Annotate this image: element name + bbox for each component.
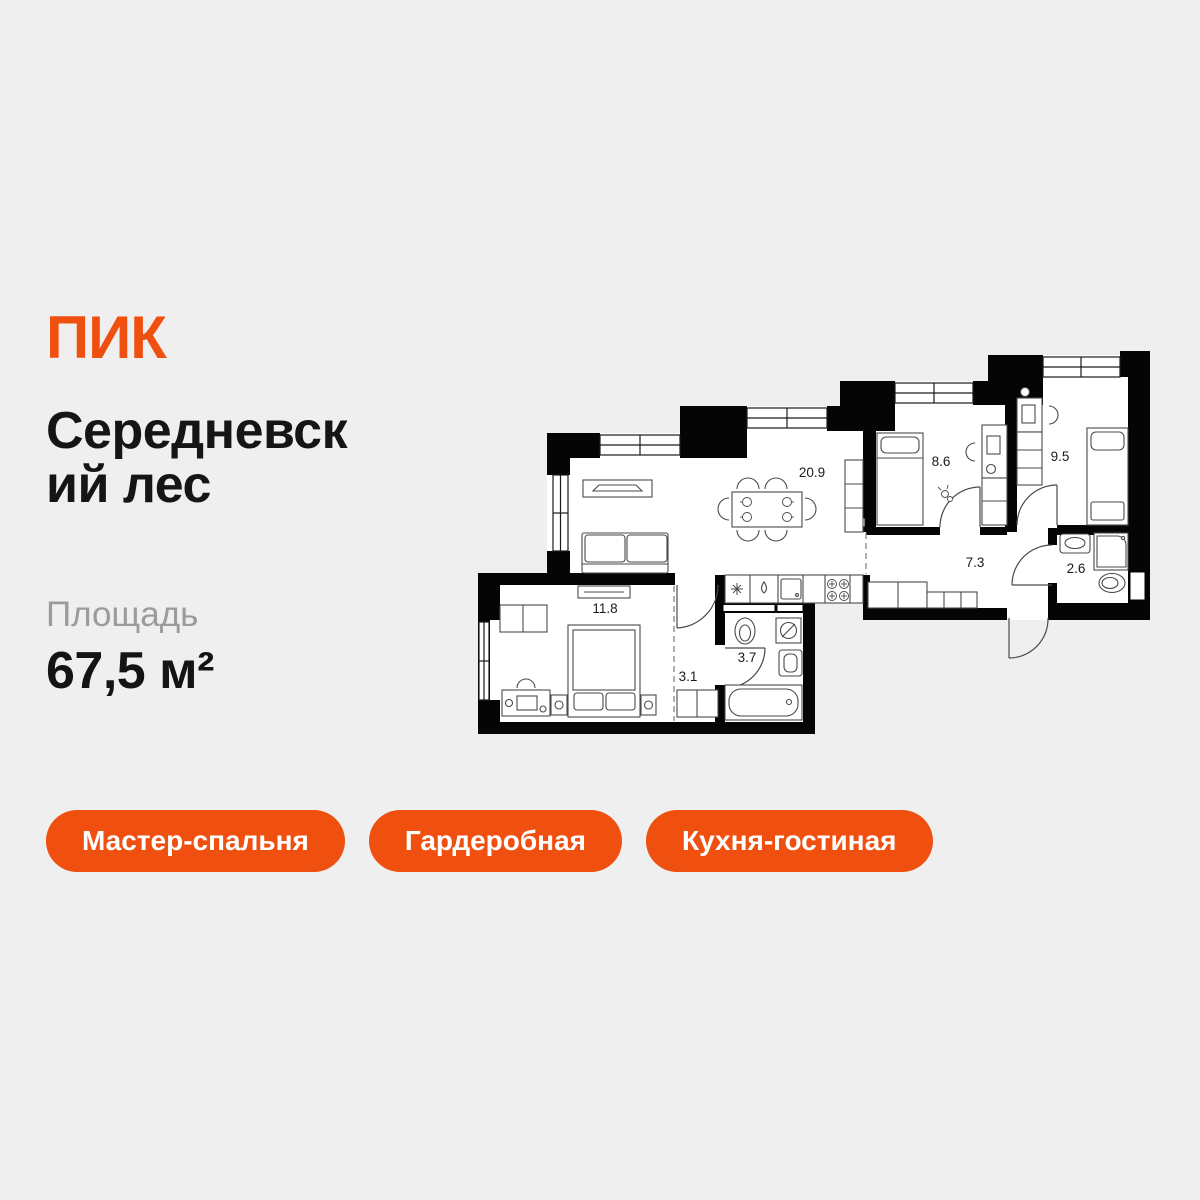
room-label-hallway: 7.3: [966, 555, 985, 570]
shelf-living: [845, 460, 863, 532]
badge-master-bedroom: Мастер-спальня: [46, 810, 345, 872]
area-value: 67,5 м²: [46, 645, 214, 697]
master-dresser: [578, 586, 630, 598]
badge-wardrobe-room: Гардеробная: [369, 810, 622, 872]
sink-bathroom37: [779, 650, 802, 676]
window-living-top: [600, 435, 680, 455]
master-wardrobe: [500, 605, 547, 632]
window-master-left: [479, 622, 489, 700]
badge-kitchen-living: Кухня-гостиная: [646, 810, 933, 872]
project-title-line1: Середневск: [46, 404, 347, 458]
window-living-left: [553, 475, 568, 551]
nightstand-right: [641, 695, 656, 715]
room-label-bedroom3: 9.5: [1051, 449, 1070, 464]
room-label-kitchen-living: 20.9: [799, 465, 825, 480]
corridor-closet: [677, 690, 718, 717]
toilet-bathroom26: [1099, 574, 1125, 593]
nightstand-left: [551, 695, 567, 715]
master-bed: [568, 625, 640, 717]
window-dining-top: [747, 408, 827, 428]
project-title-line2: ий лес: [46, 458, 347, 512]
room-label-bedroom2: 8.6: [932, 454, 951, 469]
project-title: Середневск ий лес: [46, 404, 347, 512]
tv-console: [583, 480, 652, 497]
kitchen-counter: [725, 575, 863, 603]
feature-badges: Мастер-спальня Гардеробная Кухня-гостина…: [46, 810, 933, 872]
pik-logo: ПИК: [46, 308, 166, 368]
sink-bathroom26: [1060, 534, 1090, 553]
bed-bedroom2: [877, 433, 923, 525]
room-label-bathroom: 3.7: [738, 650, 757, 665]
bed-bedroom3: [1087, 428, 1128, 525]
window-bedroom3-top: [1043, 357, 1120, 377]
toilet-bathroom37: [735, 618, 755, 644]
sink-icon: [781, 579, 801, 599]
washing-machine-icon: [776, 618, 801, 643]
cabinet-bedroom2: [982, 478, 1007, 525]
room-label-corridor: 3.1: [679, 669, 698, 684]
window-bedroom2-top: [895, 383, 973, 403]
room-label-master-bedroom: 11.8: [592, 601, 617, 616]
floorplan: 20.9 8.6 9.5 7.3 2.6 11.8 3.1 3.7: [475, 345, 1165, 745]
bathtub: [725, 685, 802, 720]
sofa: [582, 533, 668, 573]
wardrobe-bedroom3: [1017, 432, 1042, 485]
shower-tray: [1094, 533, 1128, 570]
floorplan-svg: 20.9 8.6 9.5 7.3 2.6 11.8 3.1 3.7: [475, 345, 1165, 745]
entrance-door: [1009, 618, 1048, 658]
room-label-bathroom-small: 2.6: [1067, 561, 1086, 576]
area-label: Площадь: [46, 597, 198, 632]
real-estate-card: ПИК Середневск ий лес Площадь 67,5 м²: [0, 0, 1200, 1200]
